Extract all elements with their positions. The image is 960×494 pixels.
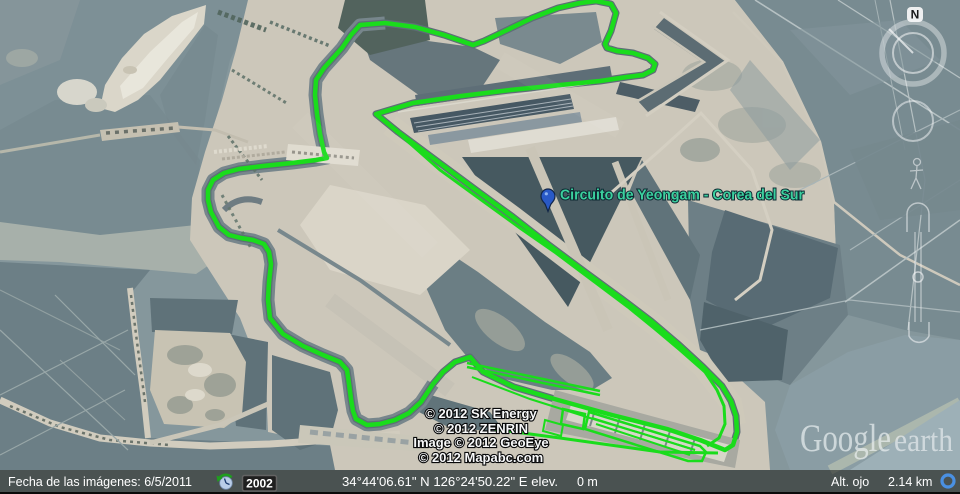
svg-text:2.14 km: 2.14 km: [888, 475, 932, 489]
svg-text:Alt. ojo: Alt. ojo: [831, 475, 869, 489]
svg-text:2002: 2002: [246, 477, 273, 491]
svg-text:Fecha de las imágenes: 6/5/201: Fecha de las imágenes: 6/5/2011: [8, 475, 192, 489]
svg-text:34°44'06.61" N 126°24'50.22" E: 34°44'06.61" N 126°24'50.22" E elev.: [342, 475, 558, 489]
svg-text:0 m: 0 m: [577, 475, 598, 489]
